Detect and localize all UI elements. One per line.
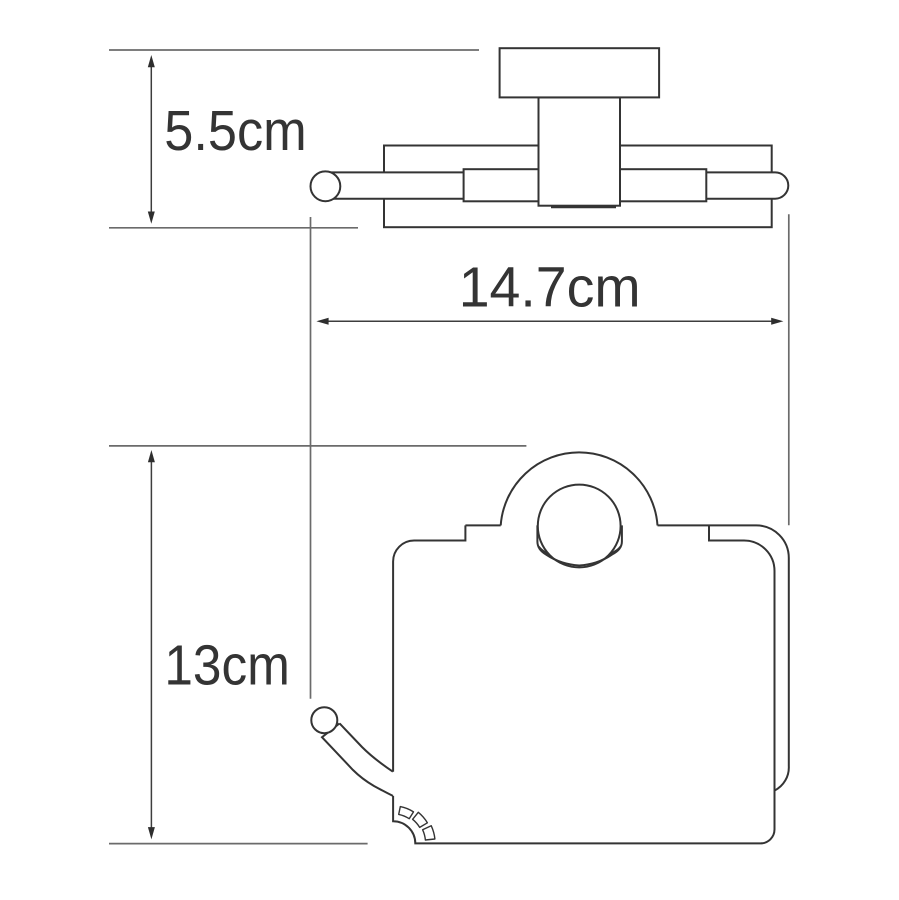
svg-text:13cm: 13cm	[164, 634, 290, 698]
svg-text:14.7cm: 14.7cm	[459, 256, 641, 320]
svg-text:5.5cm: 5.5cm	[164, 99, 306, 163]
